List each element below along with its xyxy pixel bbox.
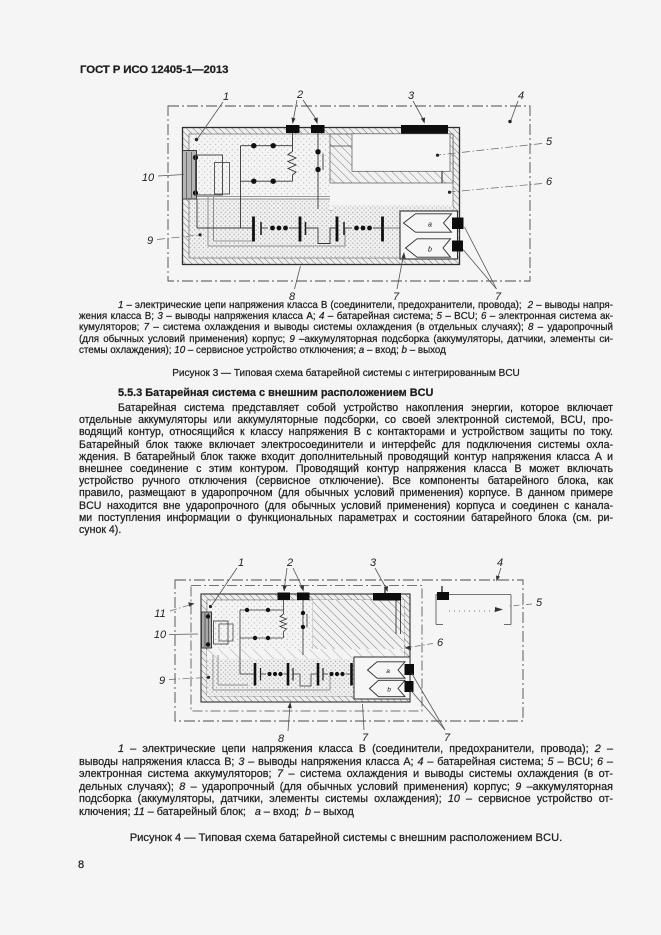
svg-text:7: 7 — [393, 291, 400, 303]
svg-text:8: 8 — [278, 733, 285, 745]
svg-text:1: 1 — [223, 91, 229, 103]
svg-text:a: a — [428, 222, 432, 229]
svg-text:1: 1 — [238, 557, 244, 569]
svg-text:9: 9 — [159, 675, 165, 687]
svg-text:7: 7 — [362, 732, 369, 744]
svg-text:8: 8 — [289, 291, 296, 303]
svg-text:a: a — [386, 668, 390, 675]
svg-text:4: 4 — [518, 90, 524, 102]
svg-text:6: 6 — [437, 637, 444, 649]
svg-text:2: 2 — [286, 557, 293, 569]
svg-text:5: 5 — [536, 597, 543, 609]
svg-text:3: 3 — [408, 90, 415, 102]
svg-text:11: 11 — [154, 608, 165, 620]
svg-text:5: 5 — [546, 136, 553, 148]
svg-text:b: b — [387, 687, 391, 694]
svg-text:2: 2 — [296, 89, 303, 101]
svg-text:7: 7 — [495, 291, 502, 303]
svg-text:10: 10 — [142, 172, 155, 184]
svg-text:7: 7 — [444, 732, 451, 744]
svg-text:3: 3 — [370, 557, 377, 569]
svg-text:9: 9 — [147, 235, 153, 247]
svg-text:6: 6 — [546, 176, 553, 188]
svg-text:4: 4 — [497, 557, 503, 569]
svg-text:10: 10 — [154, 629, 167, 641]
svg-text:b: b — [428, 247, 432, 254]
